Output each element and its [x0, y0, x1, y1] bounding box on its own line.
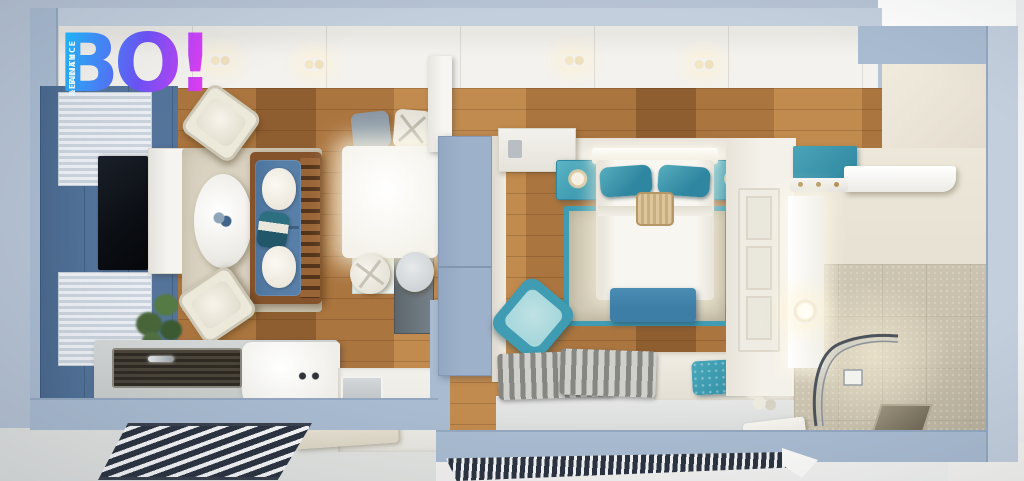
- bathroom-shelf: [844, 166, 956, 192]
- hall-bedroom-wall: [492, 136, 506, 382]
- kitchen-faucet: [148, 356, 174, 362]
- bedroom-door: [738, 188, 780, 352]
- radiator-grille-left: [98, 423, 312, 480]
- bed-foot-bench: [610, 288, 696, 322]
- dining-chair-crossback: [392, 109, 431, 150]
- wardrobe-door-seam: [439, 266, 491, 268]
- outer-wall-right: [986, 26, 1018, 462]
- nightstand-decor: [566, 168, 592, 192]
- ceiling-light: [692, 58, 716, 71]
- sofa-back-slats: [300, 158, 320, 298]
- ceiling-light: [302, 58, 326, 71]
- logo-text: BO!: [58, 18, 208, 110]
- sofa-pillow-teal: [256, 210, 291, 250]
- dining-chair-white: [347, 251, 392, 296]
- shelf-decor: [508, 140, 522, 158]
- cooktop-knobs: [296, 372, 322, 380]
- ceiling-light: [562, 54, 586, 67]
- sofa-pillow: [262, 168, 296, 210]
- tv-screen: [98, 156, 148, 270]
- ceiling-light: [208, 54, 232, 67]
- bedroom-curtain: [559, 348, 657, 397]
- dining-table: [342, 146, 438, 258]
- dining-chair-gray: [350, 110, 392, 150]
- apartment-3d-floorplan-render: REALITY & FINANCE BO!: [0, 0, 1024, 481]
- logo: REALITY & FINANCE BO!: [44, 18, 204, 114]
- sofa-pillow: [262, 246, 296, 288]
- bed-breakfast-tray: [636, 192, 674, 226]
- tall-wardrobe-cabinet: [438, 136, 492, 376]
- towel-bar: [790, 178, 848, 192]
- kitchen-sink: [112, 348, 242, 388]
- logo-tagline-line2: & FINANCE: [68, 40, 77, 96]
- coffee-table-decor: [212, 208, 232, 230]
